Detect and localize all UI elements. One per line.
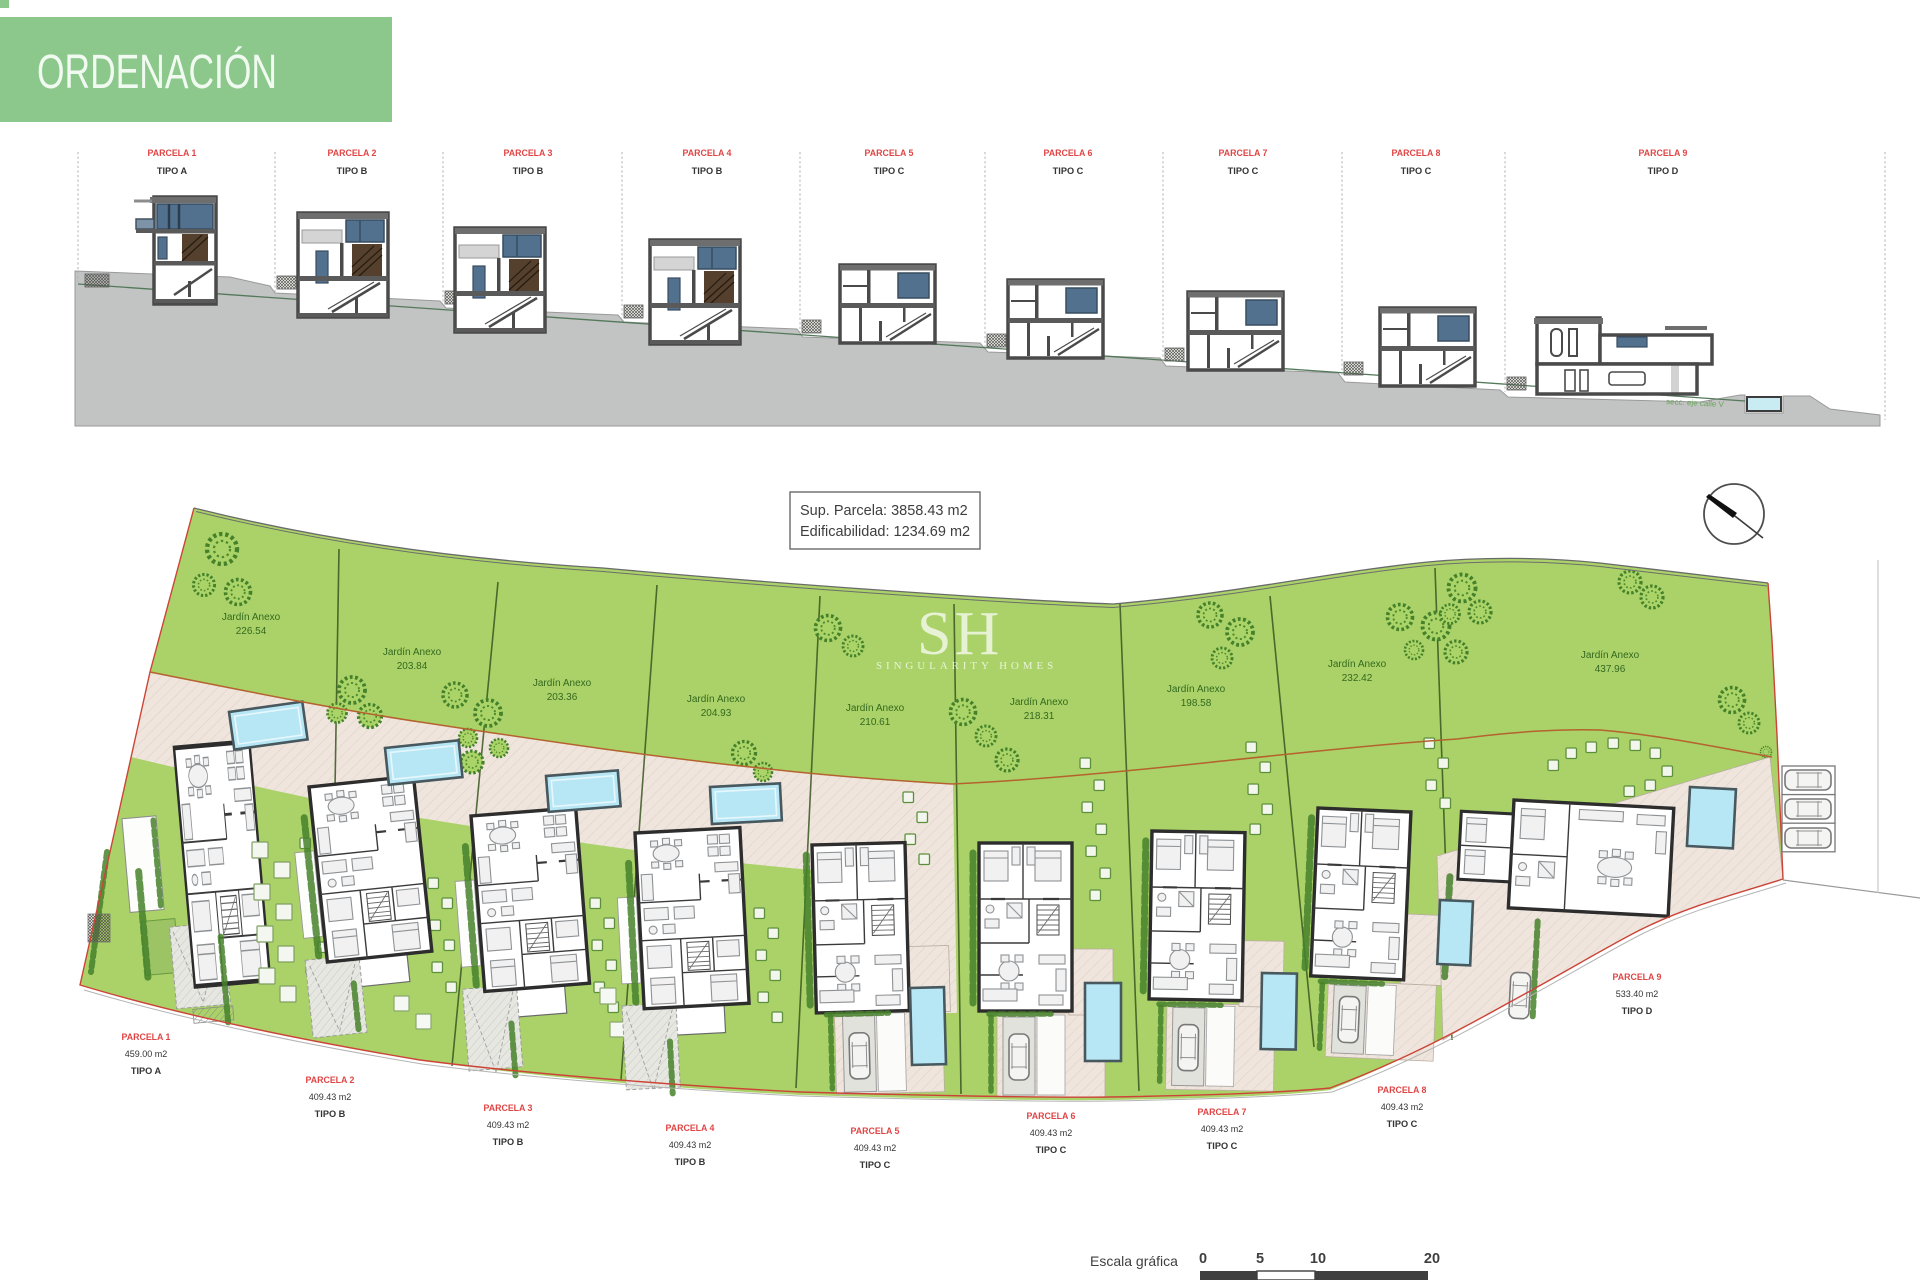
svg-text:20: 20 <box>1424 1251 1440 1267</box>
svg-text:PARCELA 5: PARCELA 5 <box>851 1126 900 1136</box>
svg-text:409.43 m2: 409.43 m2 <box>309 1092 352 1102</box>
svg-text:TIPO C: TIPO C <box>1387 1119 1418 1129</box>
svg-text:PARCELA 4: PARCELA 4 <box>683 148 732 158</box>
svg-text:437.96: 437.96 <box>1595 664 1626 675</box>
svg-text:PARCELA 9: PARCELA 9 <box>1613 972 1662 982</box>
svg-text:533.40 m2: 533.40 m2 <box>1616 989 1659 999</box>
svg-text:10: 10 <box>1310 1251 1326 1267</box>
svg-text:TIPO C: TIPO C <box>1207 1141 1238 1151</box>
svg-text:Jardín Anexo: Jardín Anexo <box>222 612 281 623</box>
svg-text:409.43 m2: 409.43 m2 <box>1030 1128 1073 1138</box>
svg-text:PARCELA 3: PARCELA 3 <box>484 1103 533 1113</box>
svg-text:409.43 m2: 409.43 m2 <box>854 1143 897 1153</box>
svg-text:TIPO C: TIPO C <box>1036 1145 1067 1155</box>
svg-text:PARCELA 3: PARCELA 3 <box>504 148 553 158</box>
svg-text:PARCELA 4: PARCELA 4 <box>666 1123 715 1133</box>
svg-text:PARCELA 1: PARCELA 1 <box>122 1032 171 1042</box>
svg-text:PARCELA 6: PARCELA 6 <box>1044 148 1093 158</box>
svg-text:Jardín Anexo: Jardín Anexo <box>383 647 442 658</box>
svg-text:Escala gráfica: Escala gráfica <box>1090 1253 1178 1269</box>
svg-text:SH: SH <box>917 600 1002 668</box>
svg-text:TIPO C: TIPO C <box>860 1160 891 1170</box>
svg-text:226.54: 226.54 <box>236 626 267 637</box>
svg-text:TIPO C: TIPO C <box>1228 166 1259 176</box>
svg-text:203.36: 203.36 <box>547 692 578 703</box>
svg-text:Jardín Anexo: Jardín Anexo <box>533 678 592 689</box>
svg-text:Jardín Anexo: Jardín Anexo <box>1328 659 1387 670</box>
svg-text:Edificabilidad: 1234.69 m2: Edificabilidad: 1234.69 m2 <box>800 524 970 540</box>
svg-text:TIPO B: TIPO B <box>675 1157 706 1167</box>
svg-text:PARCELA 7: PARCELA 7 <box>1198 1107 1247 1117</box>
svg-text:TIPO B: TIPO B <box>692 166 723 176</box>
svg-text:TIPO A: TIPO A <box>131 1066 162 1076</box>
svg-text:409.43 m2: 409.43 m2 <box>669 1140 712 1150</box>
svg-text:198.58: 198.58 <box>1181 698 1212 709</box>
svg-text:TIPO D: TIPO D <box>1648 166 1679 176</box>
svg-text:459.00 m2: 459.00 m2 <box>125 1049 168 1059</box>
svg-text:Jardín Anexo: Jardín Anexo <box>1010 697 1069 708</box>
svg-text:PARCELA 7: PARCELA 7 <box>1219 148 1268 158</box>
svg-text:PARCELA 2: PARCELA 2 <box>306 1075 355 1085</box>
svg-text:Jardín Anexo: Jardín Anexo <box>846 703 905 714</box>
svg-text:PARCELA 9: PARCELA 9 <box>1639 148 1688 158</box>
svg-text:Jardín Anexo: Jardín Anexo <box>687 694 746 705</box>
svg-text:TIPO C: TIPO C <box>874 166 905 176</box>
svg-text:PARCELA 1: PARCELA 1 <box>148 148 197 158</box>
svg-text:TIPO C: TIPO C <box>1053 166 1084 176</box>
svg-text:TIPO B: TIPO B <box>493 1137 524 1147</box>
svg-text:Jardín Anexo: Jardín Anexo <box>1167 684 1226 695</box>
svg-text:409.43 m2: 409.43 m2 <box>487 1120 530 1130</box>
svg-text:TIPO B: TIPO B <box>513 166 544 176</box>
svg-text:TIPO D: TIPO D <box>1622 1006 1653 1016</box>
svg-text:SINGULARITY HOMES: SINGULARITY HOMES <box>876 660 1057 672</box>
svg-text:5: 5 <box>1256 1251 1264 1267</box>
svg-text:PARCELA 8: PARCELA 8 <box>1378 1085 1427 1095</box>
svg-text:Jardín Anexo: Jardín Anexo <box>1581 650 1640 661</box>
svg-text:ORDENACIÓN: ORDENACIÓN <box>37 45 277 99</box>
svg-text:203.84: 203.84 <box>397 661 428 672</box>
svg-text:232.42: 232.42 <box>1342 673 1373 684</box>
svg-text:TIPO B: TIPO B <box>337 166 368 176</box>
svg-text:210.61: 210.61 <box>860 717 891 728</box>
svg-text:204.93: 204.93 <box>701 708 732 719</box>
svg-text:Sup. Parcela: 3858.43 m2: Sup. Parcela: 3858.43 m2 <box>800 503 968 519</box>
svg-text:TIPO B: TIPO B <box>315 1109 346 1119</box>
svg-text:PARCELA 8: PARCELA 8 <box>1392 148 1441 158</box>
svg-text:PARCELA 2: PARCELA 2 <box>328 148 377 158</box>
svg-text:TIPO A: TIPO A <box>157 166 188 176</box>
svg-text:0: 0 <box>1199 1251 1207 1267</box>
svg-text:218.31: 218.31 <box>1024 711 1055 722</box>
svg-text:409.43 m2: 409.43 m2 <box>1201 1124 1244 1134</box>
svg-text:TIPO C: TIPO C <box>1401 166 1432 176</box>
svg-text:PARCELA 5: PARCELA 5 <box>865 148 914 158</box>
svg-text:409.43 m2: 409.43 m2 <box>1381 1102 1424 1112</box>
svg-text:PARCELA 6: PARCELA 6 <box>1027 1111 1076 1121</box>
